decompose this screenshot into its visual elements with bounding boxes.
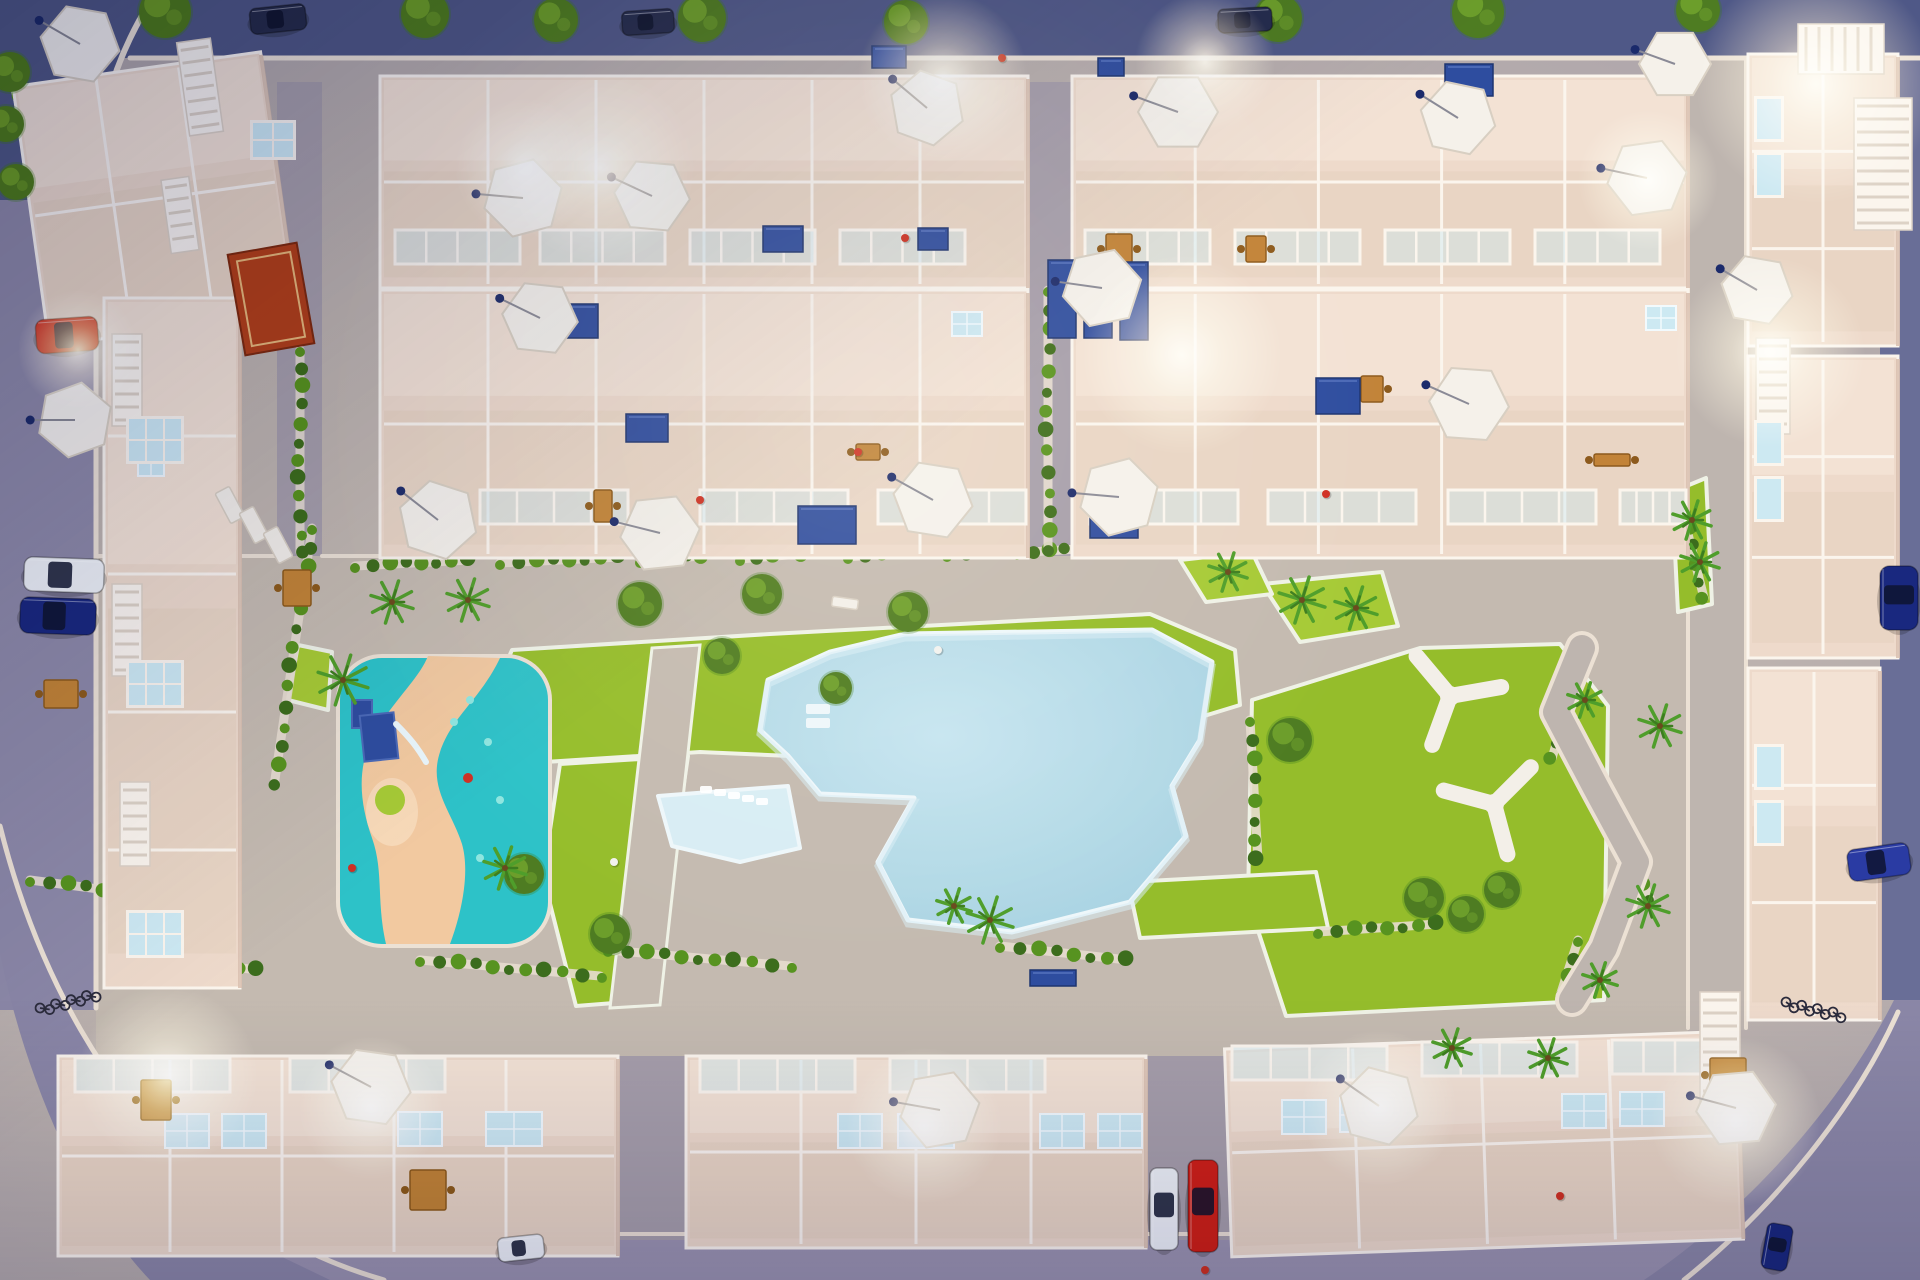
aerial-site-render [0, 0, 1920, 1280]
aerial-site-render-stage [0, 0, 1920, 1280]
layer-atmosphere [0, 0, 1920, 1280]
